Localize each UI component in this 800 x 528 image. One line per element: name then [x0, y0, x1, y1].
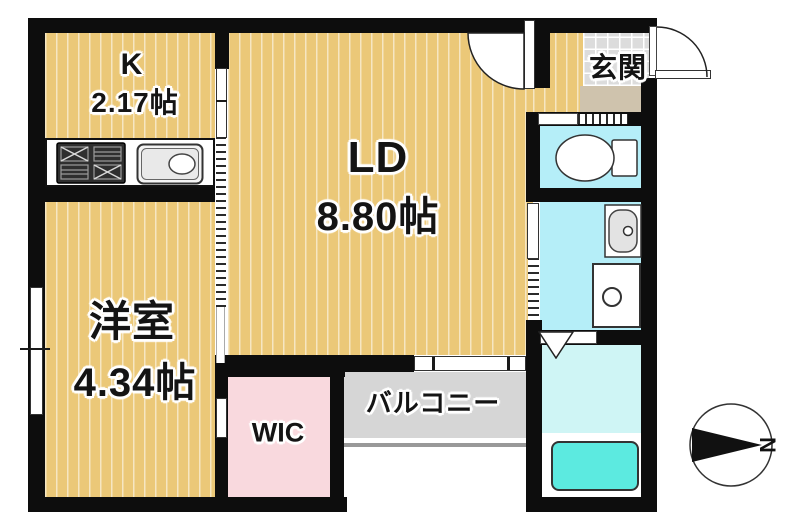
- entrance-label: 玄関: [589, 54, 647, 82]
- wall-kitchen-ld: [215, 33, 229, 69]
- interior-door-leaf: [524, 20, 535, 89]
- gas-stove-icon: [56, 142, 126, 184]
- wall-ld-right-upper: [526, 112, 540, 202]
- entrance-step: [580, 86, 649, 112]
- kitchen-sliding-door: [216, 68, 227, 138]
- wall-bottom-left: [28, 497, 347, 512]
- entrance-door-frame: [649, 26, 657, 76]
- living-dining-label: LD: [348, 136, 409, 180]
- kitchen-sliding-door-tick: [216, 100, 227, 102]
- wic-label: WIC: [252, 420, 304, 447]
- balcony-window-tick-2: [507, 357, 510, 370]
- balcony-window-tick-1: [432, 357, 435, 370]
- toilet-icon: [548, 131, 640, 185]
- kitchen-area: 2.17帖: [91, 89, 179, 117]
- western-room-label: 洋室: [89, 301, 175, 343]
- entrance-door-leaf: [655, 70, 711, 79]
- kitchen-sink-icon: [136, 143, 204, 185]
- wall-wic-top: [215, 363, 345, 377]
- washbasin-icon: [604, 204, 642, 258]
- washroom-door: [527, 203, 539, 259]
- toilet-door-gap: [538, 113, 578, 125]
- ld-western-sliding-track: [216, 137, 226, 307]
- washing-machine-drum: [602, 287, 622, 307]
- balcony-label: バルコニー: [366, 390, 500, 416]
- wall-toilet-washroom: [533, 188, 641, 202]
- wall-top: [28, 18, 657, 33]
- bathroom-folding-door: [538, 331, 574, 359]
- wic-door: [216, 398, 227, 438]
- wall-wic-right: [330, 363, 344, 497]
- floor-plan: K 2.17帖 LD 8.80帖 洋室 4.34帖 玄関 WIC バルコニー N: [0, 0, 800, 528]
- western-wic-divider: [216, 307, 225, 363]
- washing-machine-icon: [592, 263, 641, 328]
- bathtub-icon: [551, 441, 639, 491]
- balcony-fence: [343, 443, 526, 447]
- western-room-window: [30, 287, 43, 415]
- wall-hall-stub: [535, 18, 550, 88]
- entrance-sliding-track: [578, 114, 628, 124]
- living-dining-floor: [228, 33, 533, 355]
- western-room-floor: [45, 202, 215, 497]
- wall-under-counter: [45, 185, 215, 202]
- wall-bottom-right: [526, 497, 657, 512]
- wall-left: [28, 18, 45, 512]
- living-dining-area: 8.80帖: [317, 197, 440, 237]
- compass-north-label: N: [755, 437, 780, 453]
- compass: N: [687, 399, 781, 493]
- kitchen-label: K: [121, 50, 144, 80]
- western-room-window-tick: [20, 348, 50, 350]
- washroom-sliding-track: [528, 258, 539, 320]
- western-room-area: 4.34帖: [74, 363, 197, 403]
- wall-right: [641, 78, 657, 512]
